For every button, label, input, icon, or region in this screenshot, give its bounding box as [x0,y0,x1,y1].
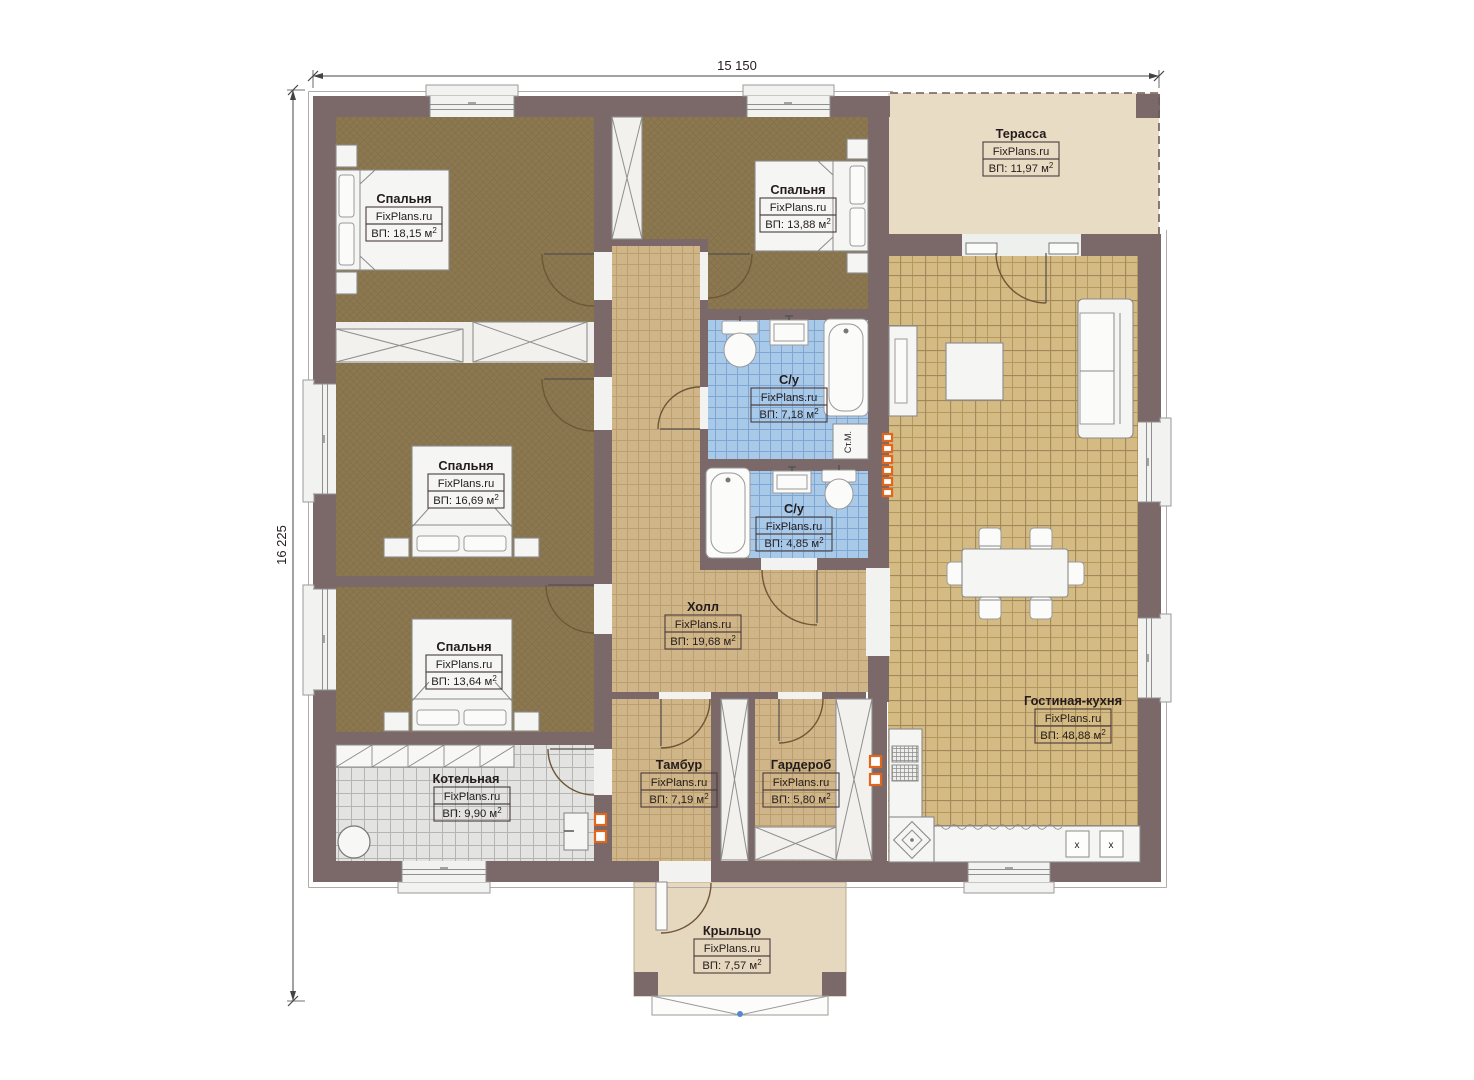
svg-text:Спальня: Спальня [436,639,491,654]
svg-text:FixPlans.ru: FixPlans.ru [376,211,433,223]
svg-text:ВП: 13,88 м2: ВП: 13,88 м2 [765,217,831,231]
svg-text:Спальня: Спальня [438,458,493,473]
svg-text:FixPlans.ru: FixPlans.ru [773,777,830,789]
svg-text:Тамбур: Тамбур [656,757,703,772]
svg-text:x: x [1075,840,1080,851]
svg-text:ВП: 7,18 м2: ВП: 7,18 м2 [759,407,819,421]
svg-text:FixPlans.ru: FixPlans.ru [651,777,708,789]
svg-text:FixPlans.ru: FixPlans.ru [770,202,827,214]
svg-text:ВП: 19,68 м2: ВП: 19,68 м2 [670,634,736,648]
svg-text:Котельная: Котельная [432,771,499,786]
svg-text:С/у: С/у [779,372,800,387]
svg-text:С/у: С/у [784,501,805,516]
svg-text:Терасса: Терасса [996,126,1048,141]
svg-text:ВП: 18,15 м2: ВП: 18,15 м2 [371,226,437,240]
svg-text:ВП: 48,88 м2: ВП: 48,88 м2 [1040,728,1106,742]
svg-text:16 225: 16 225 [274,525,289,565]
svg-text:Гостиная-кухня: Гостиная-кухня [1024,693,1122,708]
svg-text:ВП: 11,97 м2: ВП: 11,97 м2 [989,161,1054,175]
svg-text:Спальня: Спальня [770,182,825,197]
svg-text:ВП: 16,69 м2: ВП: 16,69 м2 [433,493,499,507]
svg-text:FixPlans.ru: FixPlans.ru [675,619,732,631]
svg-text:FixPlans.ru: FixPlans.ru [766,521,823,533]
svg-text:FixPlans.ru: FixPlans.ru [1045,713,1102,725]
svg-text:Крыльцо: Крыльцо [703,923,761,938]
svg-text:FixPlans.ru: FixPlans.ru [993,146,1050,158]
svg-text:x: x [1109,840,1114,851]
svg-text:15 150: 15 150 [717,58,757,73]
svg-text:FixPlans.ru: FixPlans.ru [761,392,818,404]
svg-text:FixPlans.ru: FixPlans.ru [444,791,501,803]
svg-text:Ст.М.: Ст.М. [843,431,853,453]
svg-text:FixPlans.ru: FixPlans.ru [436,659,493,671]
svg-text:ВП: 9,90 м2: ВП: 9,90 м2 [442,806,502,820]
svg-text:ВП: 7,19 м2: ВП: 7,19 м2 [649,792,709,806]
svg-text:Холл: Холл [687,599,719,614]
svg-text:ВП: 5,80 м2: ВП: 5,80 м2 [771,792,831,806]
svg-text:Спальня: Спальня [376,191,431,206]
svg-text:FixPlans.ru: FixPlans.ru [438,478,495,490]
svg-text:ВП: 4,85 м2: ВП: 4,85 м2 [764,536,824,550]
svg-text:Гардероб: Гардероб [771,757,832,772]
svg-text:ВП: 13,64 м2: ВП: 13,64 м2 [431,674,497,688]
svg-text:FixPlans.ru: FixPlans.ru [704,943,761,955]
svg-text:ВП: 7,57 м2: ВП: 7,57 м2 [702,958,762,972]
